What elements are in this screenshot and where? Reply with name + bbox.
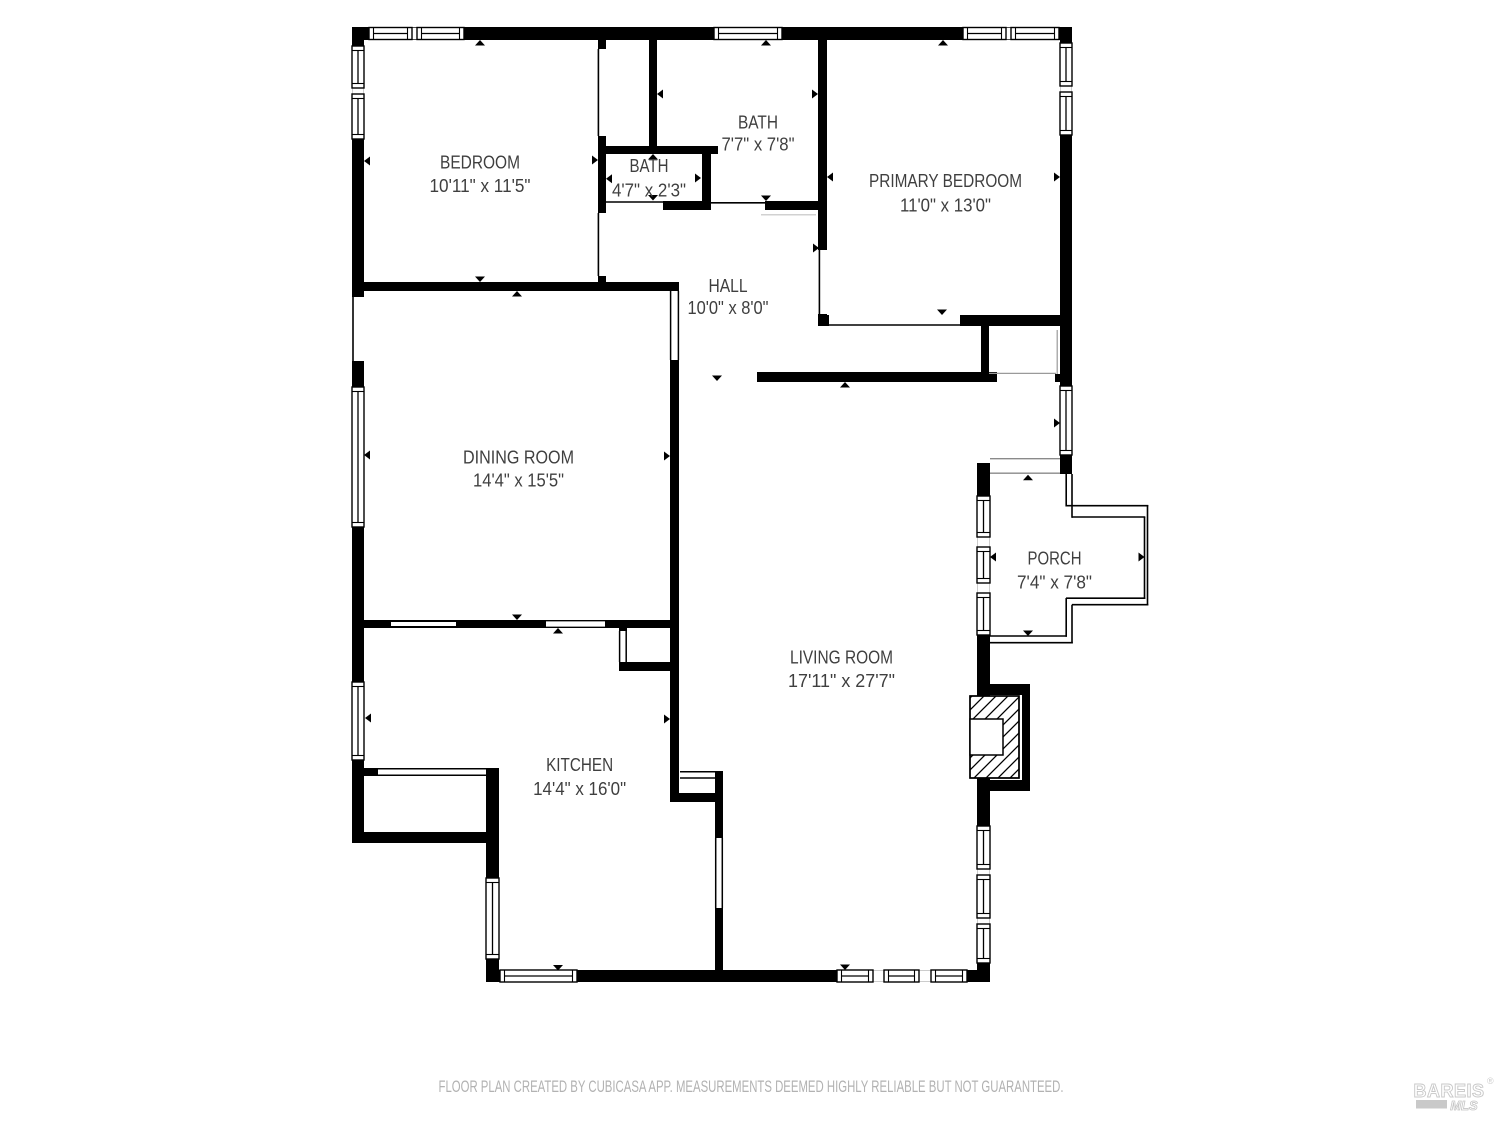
- svg-text:14'4" x 16'0": 14'4" x 16'0": [533, 779, 626, 799]
- svg-text:BATH: BATH: [630, 156, 669, 176]
- svg-text:14'4" x 15'5": 14'4" x 15'5": [473, 471, 564, 491]
- svg-text:11'0" x 13'0": 11'0" x 13'0": [900, 196, 991, 216]
- svg-text:10'11" x 11'5": 10'11" x 11'5": [430, 176, 531, 196]
- svg-text:7'4" x 7'8": 7'4" x 7'8": [1017, 573, 1092, 593]
- svg-text:17'11" x 27'7": 17'11" x 27'7": [788, 671, 895, 691]
- svg-text:MLS: MLS: [1450, 1098, 1478, 1113]
- svg-text:BEDROOM: BEDROOM: [440, 153, 520, 173]
- svg-text:DINING ROOM: DINING ROOM: [463, 448, 574, 468]
- svg-text:FLOOR PLAN CREATED BY CUBICASA: FLOOR PLAN CREATED BY CUBICASA APP. MEAS…: [439, 1077, 1064, 1096]
- svg-text:7'7" x 7'8": 7'7" x 7'8": [722, 135, 795, 155]
- svg-text:PRIMARY BEDROOM: PRIMARY BEDROOM: [869, 171, 1022, 191]
- svg-text:®: ®: [1487, 1076, 1494, 1086]
- svg-text:HALL: HALL: [709, 276, 748, 296]
- svg-text:4'7" x 2'3": 4'7" x 2'3": [612, 181, 686, 201]
- svg-text:10'0" x 8'0": 10'0" x 8'0": [688, 298, 769, 318]
- svg-text:PORCH: PORCH: [1028, 548, 1082, 568]
- svg-text:BATH: BATH: [738, 113, 778, 133]
- svg-text:LIVING ROOM: LIVING ROOM: [790, 648, 893, 668]
- svg-text:KITCHEN: KITCHEN: [546, 755, 613, 775]
